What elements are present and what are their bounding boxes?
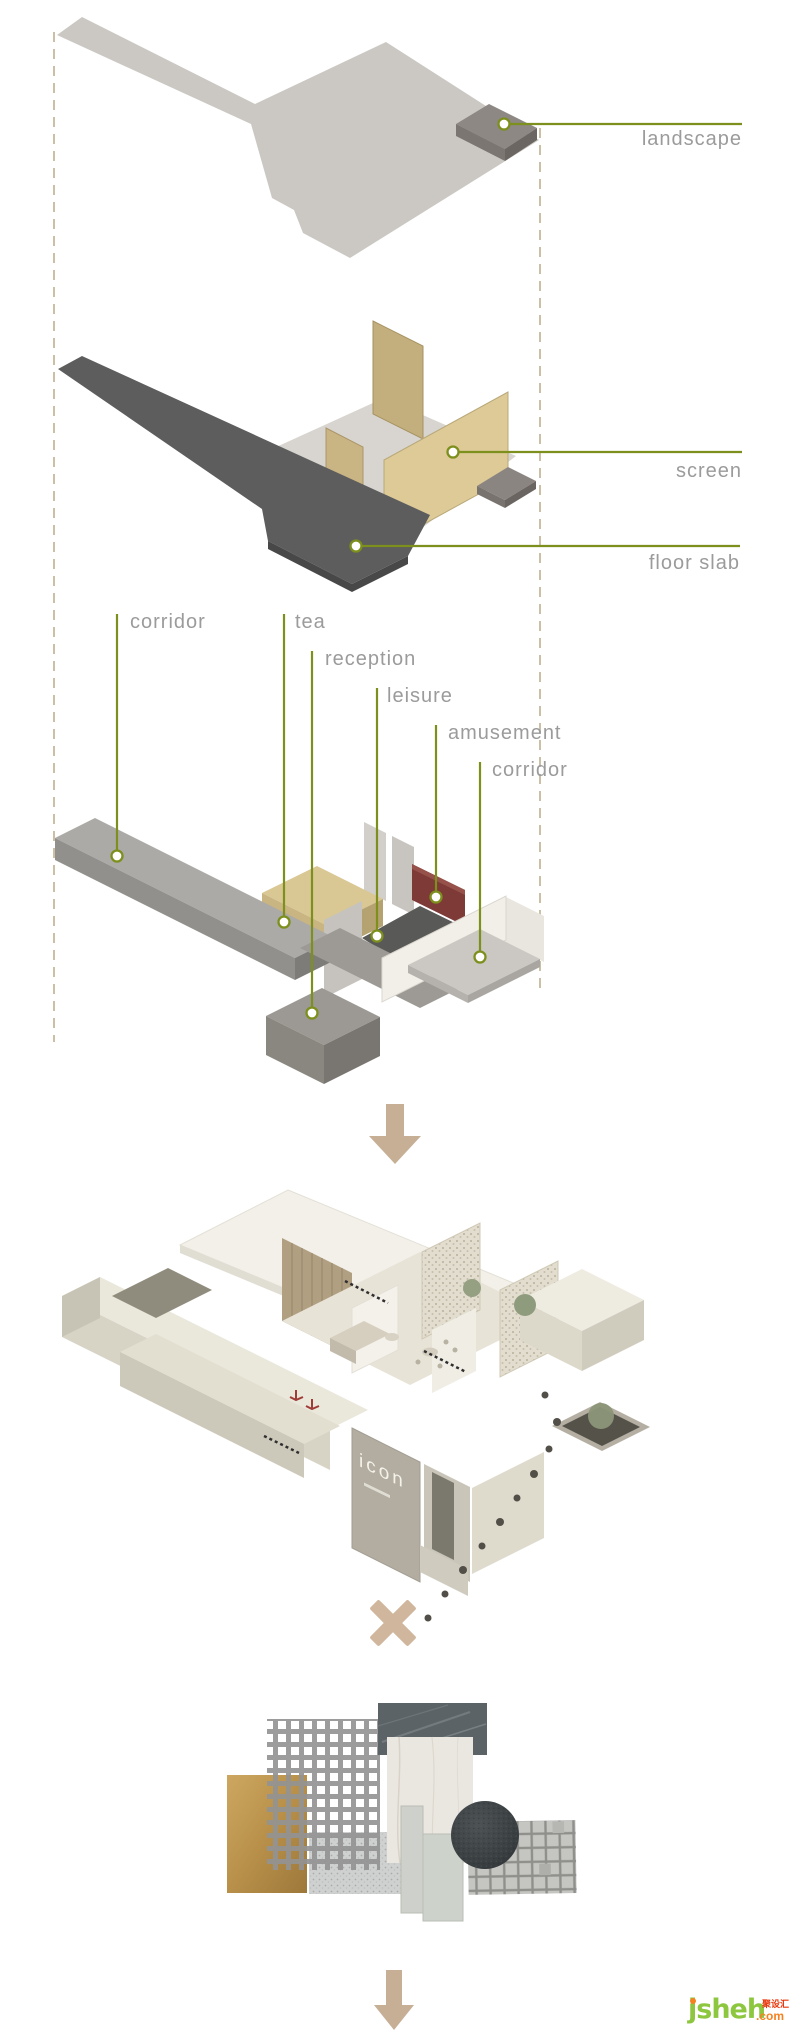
swatch-concrete-plank-narrow [401,1806,423,1913]
swatch-perforated-metal-mesh [267,1719,380,1870]
program-layer-drawing [55,818,544,1084]
plant-icon [463,1279,481,1297]
screen-floorslab-layer-drawing [58,321,536,592]
callout-amusement: amusement [448,723,562,743]
watermark-j-dot-icon [690,1998,696,2004]
landscape-layer-drawing [57,17,539,258]
swatch-dark-carpet-disc [451,1801,519,1869]
plant-icon [514,1294,536,1316]
down-arrow-top [369,1104,421,1164]
callout-corridor-right: corridor [492,760,568,780]
callout-landscape: landscape [642,129,742,149]
callout-leisure: leisure [387,686,453,706]
down-arrow-bottom [374,1970,414,2030]
callout-corridor-top: corridor [130,612,206,632]
tree-icon [588,1403,614,1429]
callout-floor-slab: floor slab [649,553,740,573]
watermark-tld: .com [756,2009,784,2023]
callout-screen: screen [676,461,742,481]
callout-tea: tea [295,612,326,632]
jsheh-watermark: jsheh 聚设汇 .com [688,1996,788,2030]
materials-board [227,1703,577,1921]
multiply-icon [369,1599,416,1646]
diagram-artwork [0,0,790,2030]
axon-model-drawing [62,1190,650,1622]
architecture-concept-sheet: landscape screen floor slab corridor tea… [0,0,790,2030]
watermark-brand: jsheh [688,1996,765,2023]
callout-reception: reception [325,649,416,669]
